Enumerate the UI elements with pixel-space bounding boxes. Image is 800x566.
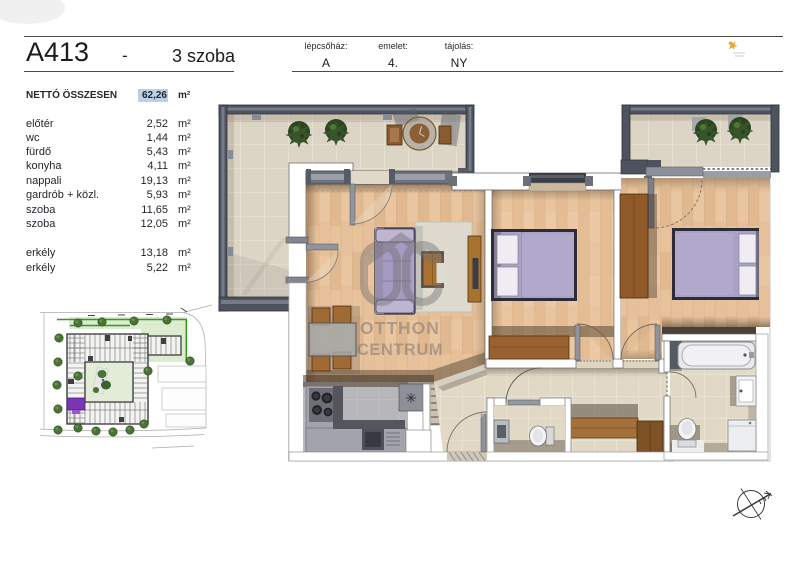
svg-text:OTTHON: OTTHON bbox=[360, 318, 440, 338]
svg-text:CENTRUM: CENTRUM bbox=[357, 341, 443, 359]
